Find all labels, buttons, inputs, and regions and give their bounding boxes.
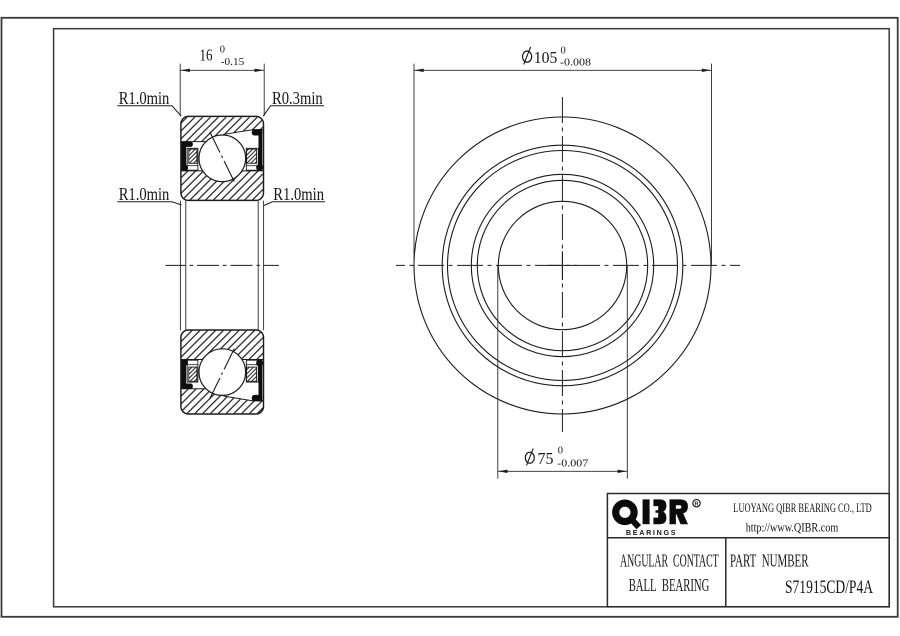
svg-text:R1.0min: R1.0min	[119, 184, 170, 204]
svg-text:0: 0	[558, 445, 563, 456]
svg-text:0: 0	[220, 44, 225, 55]
svg-text:105: 105	[534, 48, 558, 67]
svg-text:S71915CD/P4A: S71915CD/P4A	[785, 577, 873, 598]
svg-text:BEARINGS: BEARINGS	[626, 528, 676, 537]
svg-text:-0.007: -0.007	[557, 458, 588, 469]
svg-text:R: R	[694, 501, 698, 507]
svg-text:http://www.QIBR.com: http://www.QIBR.com	[746, 520, 839, 534]
svg-text:-0.008: -0.008	[560, 57, 591, 68]
svg-text:16: 16	[200, 46, 213, 65]
svg-text:BALL BEARING: BALL BEARING	[629, 575, 710, 595]
svg-text:R0.3min: R0.3min	[272, 88, 323, 108]
svg-text:0: 0	[561, 46, 566, 57]
svg-text:ANGULAR CONTACT: ANGULAR CONTACT	[620, 550, 719, 570]
svg-text:PART NUMBER: PART NUMBER	[730, 550, 809, 570]
svg-text:-0.15: -0.15	[221, 57, 244, 68]
svg-text:75: 75	[538, 449, 554, 468]
svg-text:LUOYANG QIBR BEARING CO., LTD: LUOYANG QIBR BEARING CO., LTD	[733, 501, 871, 515]
svg-text:R1.0min: R1.0min	[119, 88, 170, 108]
svg-text:R1.0min: R1.0min	[273, 184, 324, 204]
